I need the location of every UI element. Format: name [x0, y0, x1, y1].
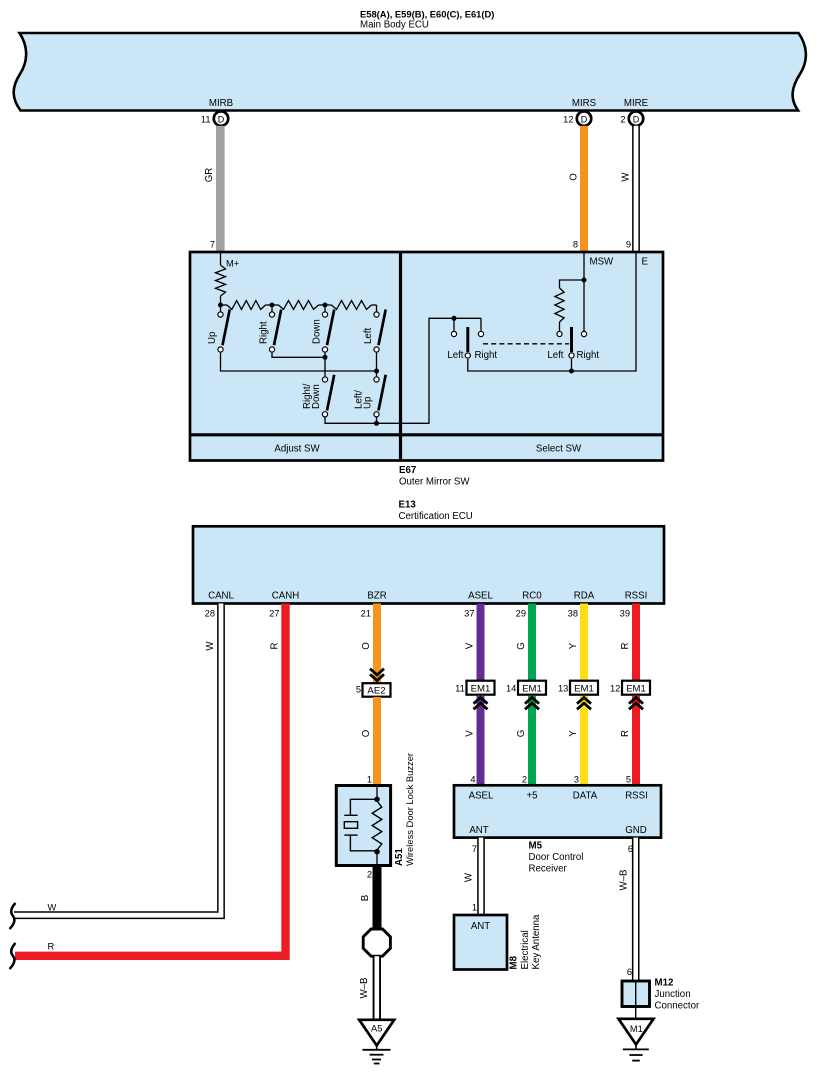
svg-text:29: 29 — [516, 609, 526, 619]
svg-text:21: 21 — [361, 609, 371, 619]
svg-text:ASEL: ASEL — [468, 591, 493, 602]
svg-text:Connector: Connector — [655, 1000, 700, 1011]
svg-text:Y: Y — [568, 642, 579, 649]
svg-text:RSSI: RSSI — [625, 791, 648, 802]
svg-text:O: O — [361, 642, 372, 650]
svg-text:Down: Down — [311, 384, 322, 409]
svg-text:V: V — [465, 642, 476, 649]
svg-text:Outer Mirror SW: Outer Mirror SW — [399, 477, 470, 488]
svg-text:Y: Y — [568, 730, 579, 737]
svg-text:14: 14 — [506, 684, 516, 694]
svg-text:A5: A5 — [371, 1024, 382, 1034]
svg-text:W: W — [205, 641, 216, 651]
svg-text:12: 12 — [563, 115, 573, 125]
svg-text:M1: M1 — [630, 1024, 643, 1034]
svg-text:1: 1 — [367, 775, 372, 785]
svg-text:M+: M+ — [226, 259, 239, 269]
svg-text:W: W — [48, 902, 57, 912]
svg-text:MSW: MSW — [590, 257, 615, 268]
svg-text:2: 2 — [620, 115, 625, 125]
svg-text:8: 8 — [573, 240, 578, 250]
svg-text:CANH: CANH — [272, 591, 299, 602]
svg-text:EM1: EM1 — [626, 684, 646, 695]
svg-text:+5: +5 — [526, 791, 537, 802]
svg-text:Main Body ECU: Main Body ECU — [360, 20, 429, 31]
svg-text:GR: GR — [204, 168, 215, 183]
svg-text:D: D — [581, 114, 588, 124]
svg-text:G: G — [516, 642, 527, 650]
svg-text:R: R — [270, 643, 281, 650]
svg-text:MIRE: MIRE — [624, 98, 649, 109]
svg-text:Key Antenna: Key Antenna — [531, 914, 542, 970]
svg-text:7: 7 — [472, 844, 477, 854]
svg-text:D: D — [633, 114, 640, 124]
svg-text:D: D — [218, 114, 225, 124]
svg-text:W–B: W–B — [619, 870, 630, 891]
svg-text:EM1: EM1 — [471, 684, 491, 695]
svg-text:Certification ECU: Certification ECU — [399, 511, 473, 522]
svg-text:Receiver: Receiver — [529, 863, 568, 874]
svg-text:R: R — [48, 941, 55, 951]
svg-text:Junction: Junction — [655, 989, 691, 1000]
svg-text:E13: E13 — [399, 500, 417, 511]
svg-text:1: 1 — [472, 903, 477, 913]
svg-text:Adjust SW: Adjust SW — [274, 444, 320, 455]
svg-text:Wireless Door Lock Buzzer: Wireless Door Lock Buzzer — [404, 753, 415, 866]
svg-text:Right: Right — [475, 350, 498, 361]
svg-text:11: 11 — [455, 684, 465, 694]
svg-text:ASEL: ASEL — [469, 791, 494, 802]
svg-text:E58(A), E59(B), E60(C), E61(D): E58(A), E59(B), E60(C), E61(D) — [360, 9, 494, 20]
svg-text:27: 27 — [269, 609, 279, 619]
svg-text:G: G — [516, 730, 527, 738]
svg-text:5: 5 — [356, 685, 361, 695]
svg-text:7: 7 — [210, 240, 215, 250]
svg-text:Electrical: Electrical — [520, 930, 531, 969]
svg-text:O: O — [569, 173, 580, 181]
svg-text:GND: GND — [625, 825, 647, 836]
svg-text:BZR: BZR — [367, 591, 386, 602]
svg-text:R: R — [620, 643, 631, 650]
svg-text:M12: M12 — [655, 978, 674, 989]
svg-text:V: V — [465, 730, 476, 737]
svg-text:AE2: AE2 — [367, 685, 385, 696]
svg-text:ANT: ANT — [469, 825, 488, 836]
svg-text:6: 6 — [627, 967, 632, 977]
svg-text:37: 37 — [464, 609, 474, 619]
svg-text:Left: Left — [363, 328, 374, 344]
svg-text:Select SW: Select SW — [536, 444, 582, 455]
svg-text:W: W — [621, 172, 632, 182]
svg-text:Right: Right — [577, 350, 600, 361]
svg-text:39: 39 — [620, 609, 630, 619]
svg-text:Left: Left — [447, 350, 463, 361]
svg-text:EM1: EM1 — [574, 684, 594, 695]
svg-text:2: 2 — [367, 870, 372, 880]
svg-text:O: O — [361, 729, 372, 737]
svg-text:RSSI: RSSI — [625, 591, 648, 602]
svg-text:M8: M8 — [509, 955, 520, 969]
svg-text:11: 11 — [201, 115, 211, 125]
svg-text:Right: Right — [259, 321, 270, 344]
svg-text:MIRS: MIRS — [572, 98, 597, 109]
svg-text:RC0: RC0 — [522, 591, 542, 602]
svg-text:4: 4 — [470, 775, 475, 785]
svg-text:ANT: ANT — [471, 921, 490, 932]
svg-text:M5: M5 — [529, 841, 543, 852]
svg-text:W: W — [464, 872, 475, 882]
svg-text:RDA: RDA — [574, 591, 595, 602]
svg-text:Up: Up — [207, 332, 218, 344]
svg-text:DATA: DATA — [573, 791, 598, 802]
svg-text:3: 3 — [574, 775, 579, 785]
svg-text:Up: Up — [363, 397, 374, 409]
svg-text:Down: Down — [312, 319, 323, 344]
svg-text:38: 38 — [568, 609, 578, 619]
svg-text:CANL: CANL — [208, 591, 234, 602]
svg-text:2: 2 — [522, 775, 527, 785]
svg-text:28: 28 — [205, 609, 215, 619]
svg-text:9: 9 — [626, 240, 631, 250]
svg-text:R: R — [620, 730, 631, 737]
svg-text:13: 13 — [558, 684, 568, 694]
svg-text:5: 5 — [626, 775, 631, 785]
svg-text:E67: E67 — [399, 465, 416, 476]
svg-text:MIRB: MIRB — [209, 98, 233, 109]
svg-text:12: 12 — [610, 684, 620, 694]
svg-text:Left: Left — [547, 350, 563, 361]
svg-text:E: E — [642, 257, 649, 268]
svg-text:W–B: W–B — [359, 978, 370, 999]
svg-text:Door Control: Door Control — [529, 852, 584, 863]
svg-text:B: B — [360, 895, 371, 901]
svg-text:EM1: EM1 — [522, 684, 542, 695]
